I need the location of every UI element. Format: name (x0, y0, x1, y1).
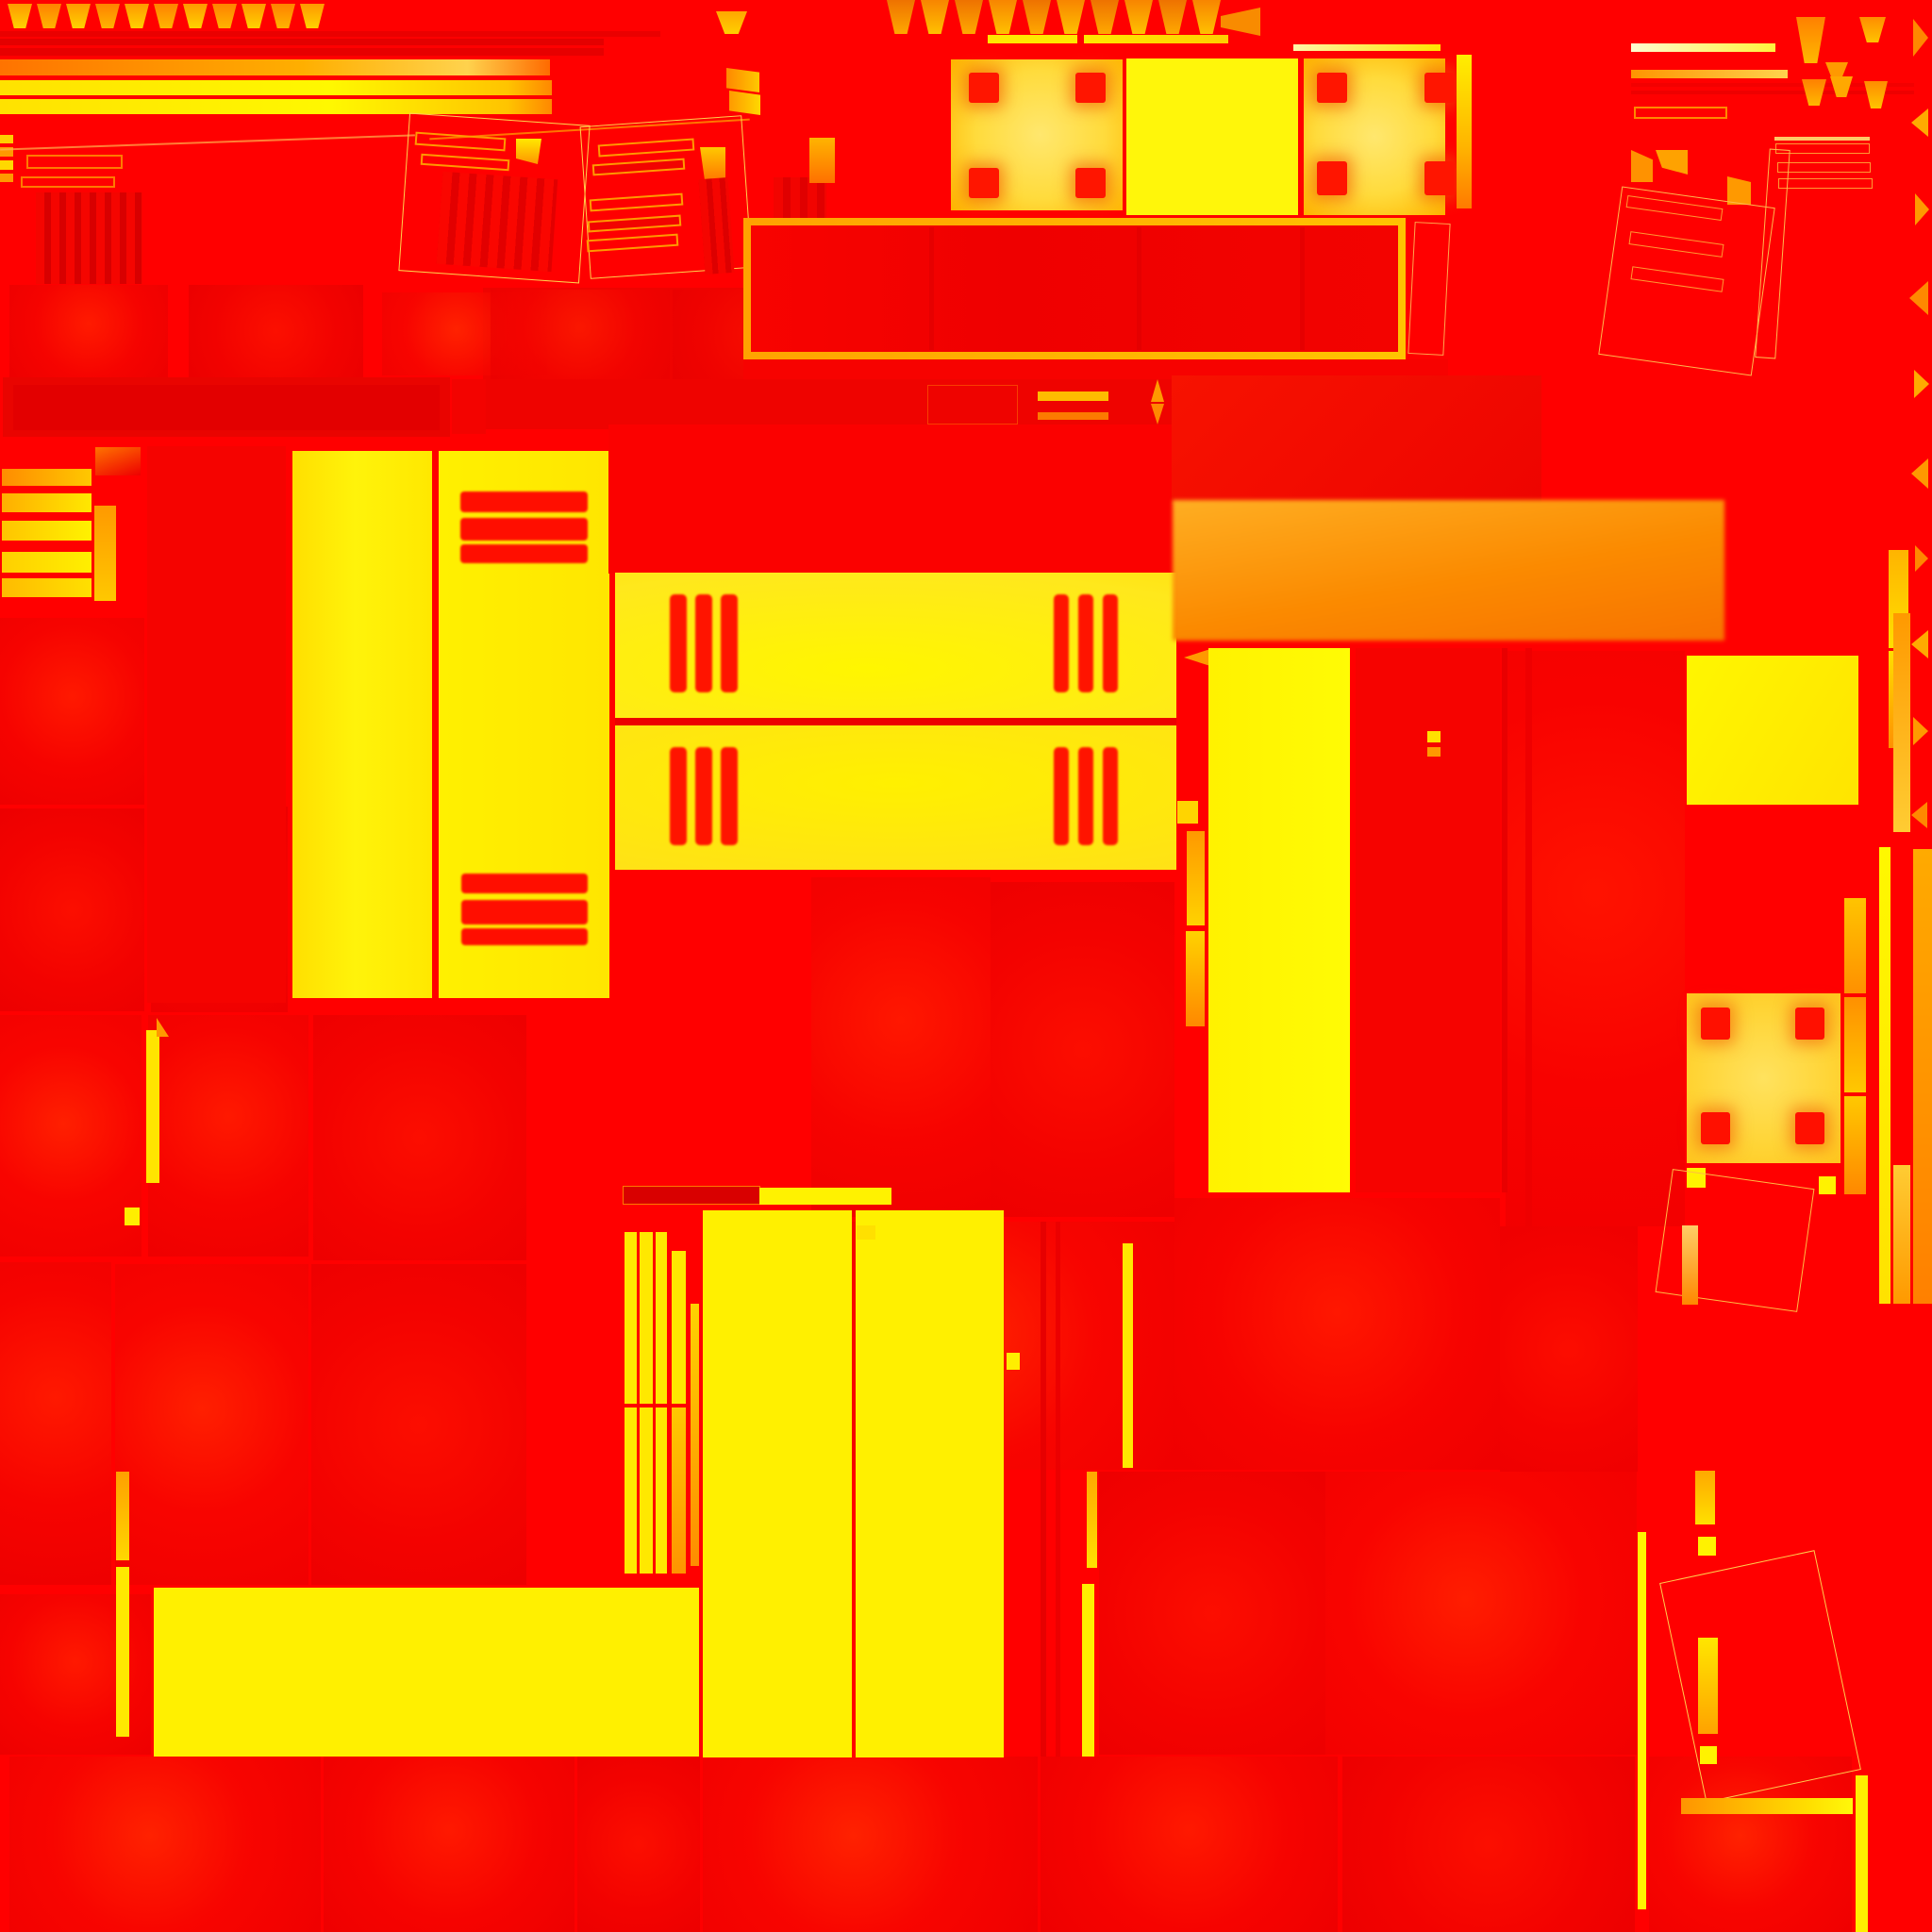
small-dash (1038, 391, 1108, 401)
stripe-trio (1054, 594, 1069, 692)
bottom-column (703, 1210, 852, 1757)
soft-tile (0, 1262, 111, 1585)
trapezoid-row-a (271, 4, 295, 28)
menu-bar-red (460, 518, 588, 541)
orange-bar (1631, 70, 1788, 78)
orange-wedge (1656, 150, 1688, 175)
stripe-trio (721, 594, 738, 692)
orange-bar-v (1698, 1638, 1718, 1734)
long-yellow-line (1638, 1532, 1646, 1909)
stripe-dark (0, 48, 604, 56)
stripe-trio (1054, 747, 1069, 845)
trapezoid-row-a (66, 4, 91, 28)
yellow-dash (1084, 35, 1228, 43)
corner-trapezoid (1859, 17, 1886, 42)
thin-strip (640, 1232, 653, 1404)
dice-pip (969, 73, 999, 103)
dark-line (1056, 1222, 1060, 1757)
dice-pip (1795, 1112, 1824, 1144)
left-thin-strip (116, 1472, 129, 1560)
doc-stripes (437, 172, 558, 272)
tiny-dash (1427, 731, 1441, 742)
trapezoid-row-a (154, 4, 178, 28)
yellow-block (1687, 656, 1858, 805)
far-strip (1893, 1165, 1910, 1304)
soft-tile (115, 1264, 308, 1585)
small-square (1819, 1176, 1836, 1194)
stripe-trio (1078, 747, 1093, 845)
yellow-column-mid (1208, 648, 1350, 1192)
dice-pip (1424, 161, 1455, 195)
left-thin-strip (146, 1030, 159, 1183)
outlined-bar (26, 155, 123, 169)
stripe-dark (0, 39, 604, 45)
edge-triangle (1911, 458, 1928, 489)
orange-wedge (1727, 176, 1751, 205)
stripe-yellow (0, 80, 552, 95)
corner-trapezoid (1864, 81, 1888, 108)
diag-line (0, 134, 415, 150)
mid-strip (1082, 1584, 1094, 1757)
stripe-trio (670, 747, 687, 845)
yellow-dash (988, 35, 1077, 43)
outlined-bar (1634, 107, 1727, 119)
faint-outline-rect (927, 385, 1018, 425)
trapezoid-row-b (1192, 0, 1221, 34)
seam-line (1502, 648, 1507, 1192)
tiny-dash (1427, 747, 1441, 757)
menu-bar-red (461, 900, 588, 924)
trapezoid-row-b (955, 0, 983, 34)
menu-bar-red (460, 491, 588, 512)
soft-tile (9, 285, 168, 377)
left-bar (2, 469, 92, 486)
trapezoid-row-a (95, 4, 120, 28)
thin-yellow-line (1123, 1243, 1133, 1468)
thin-strip (625, 1232, 637, 1404)
edge-triangle (1909, 281, 1928, 315)
trapezoid-row-b (1124, 0, 1153, 34)
dice-pip (1424, 73, 1455, 103)
dice-pip (1317, 73, 1347, 103)
edge-tick (0, 160, 13, 170)
trapezoid-row-b (887, 0, 915, 34)
book-stripes (36, 192, 142, 284)
edge-tick (0, 135, 13, 143)
left-thin-strip (116, 1567, 129, 1737)
row-end-wedge (1221, 8, 1260, 36)
mid-strip (1087, 1472, 1097, 1568)
tiny-dash (857, 1225, 875, 1240)
trapezoid-row-a (125, 4, 149, 28)
soft-tile (1342, 1757, 1635, 1932)
right-strip (1844, 997, 1866, 1092)
trapezoid-row-b (989, 0, 1017, 34)
soft-tile (148, 1015, 308, 1257)
bar-divider (615, 718, 1176, 725)
edge-triangle (1915, 545, 1928, 572)
edge-tick (0, 174, 13, 182)
far-strip (1913, 849, 1932, 1304)
corner-trapezoid (1802, 79, 1826, 106)
right-strip (1844, 1096, 1866, 1194)
soft-tile (311, 1264, 526, 1585)
gradient-hbar (1681, 1798, 1853, 1814)
texture-atlas-canvas (0, 0, 1932, 1932)
dice-pip (969, 168, 999, 198)
tilted-strip-outline (1407, 222, 1450, 356)
thin-strip (672, 1251, 686, 1404)
box-seam (929, 227, 934, 350)
dice-pip (1701, 1112, 1730, 1144)
soft-tile (0, 1015, 142, 1257)
edge-triangle (1914, 370, 1929, 398)
orange-wedge (1631, 150, 1653, 182)
left-bar (2, 552, 92, 573)
edge-triangle (1913, 717, 1928, 745)
small-triangle (1184, 649, 1210, 666)
menu-bar-red (460, 544, 588, 563)
narrow-strip (1186, 931, 1205, 1026)
thin-strip (656, 1407, 667, 1574)
soft-tile (1506, 651, 1685, 1226)
thin-strip (691, 1304, 699, 1566)
stripe-orange (0, 59, 550, 75)
trapezoid-row-b (1158, 0, 1187, 34)
tilted-outline (1656, 1169, 1815, 1312)
red-column-mid (1356, 648, 1500, 1192)
trapezoid-row-a (212, 4, 237, 28)
soft-tile (703, 1757, 1038, 1932)
edge-triangle (1913, 19, 1928, 57)
narrow-strip (1177, 801, 1198, 824)
far-strip (1893, 613, 1910, 832)
bottom-column (856, 1210, 1004, 1757)
outlined-bar (1777, 162, 1871, 173)
yellow-tile (1126, 58, 1298, 215)
stripe-trio (1103, 747, 1118, 845)
soft-tile (0, 808, 144, 1011)
stripe-trio (670, 594, 687, 692)
thin-strip (656, 1232, 667, 1404)
stripe-trio (721, 747, 738, 845)
left-bar (2, 521, 92, 541)
yellow-vbar (1856, 1775, 1868, 1932)
dice-pip (1075, 168, 1106, 198)
orange-wedge (95, 447, 141, 475)
banner-gradient (1173, 500, 1724, 641)
soft-tile (9, 1757, 321, 1932)
corner-trapezoid (1825, 62, 1848, 78)
gradient-strip (1457, 55, 1472, 208)
doc-wedge (809, 138, 835, 183)
trapezoid-row-b (1091, 0, 1119, 34)
trapezoid-row-a (241, 4, 266, 28)
soft-tile (324, 1757, 575, 1932)
white-yellow-bar (1631, 43, 1775, 52)
trapezoid-row-b (1057, 0, 1085, 34)
thin-strip (672, 1407, 686, 1574)
soft-tile (189, 285, 363, 377)
dice-pip (1317, 161, 1347, 195)
dash-dark (623, 1186, 760, 1205)
orange-strip (1682, 1225, 1698, 1305)
soft-tile (1500, 1226, 1638, 1472)
soft-tile (0, 618, 144, 805)
edge-triangle (1915, 193, 1929, 225)
left-bar (2, 493, 92, 512)
trapezoid-row-a (37, 4, 61, 28)
dark-rect-inner (13, 385, 440, 430)
small-dash (1038, 412, 1108, 420)
soft-tile (491, 290, 670, 379)
edge-triangle (1911, 802, 1927, 828)
soft-tile (577, 1757, 700, 1932)
left-bar (2, 578, 92, 597)
soft-tile (313, 1015, 526, 1260)
bright-strip (1879, 847, 1890, 1304)
stripe-yellow (0, 99, 552, 114)
wide-yellow-bar (154, 1588, 699, 1757)
soft-tile (1041, 1757, 1338, 1932)
soft-tile (1325, 1472, 1637, 1755)
red-column-left (147, 446, 286, 1003)
narrow-strip (1187, 831, 1205, 925)
trapezoid-row-b (921, 0, 949, 34)
dark-block (1172, 375, 1541, 505)
edge-triangle (1911, 108, 1928, 137)
box-seam (1300, 227, 1305, 350)
small-square (1698, 1537, 1716, 1556)
soft-tile (1099, 1472, 1325, 1755)
trapezoid-row-a (300, 4, 325, 28)
soft-tile (811, 877, 991, 1217)
dice-pip (1701, 1008, 1730, 1040)
soft-tile (991, 882, 1174, 1217)
soft-tile (1174, 1198, 1500, 1470)
orange-strip (1695, 1471, 1715, 1524)
trapezoid-row-b (1023, 0, 1051, 34)
orange-strip (94, 506, 116, 601)
thin-strip (640, 1407, 653, 1574)
menu-bar-red (461, 874, 588, 893)
single-trapezoid (716, 11, 747, 34)
dice-pip (1075, 73, 1106, 103)
dash-bright (759, 1188, 891, 1205)
small-square (125, 1207, 140, 1225)
stripe-trio (1103, 594, 1118, 692)
outlined-bar (21, 176, 115, 188)
box-seam (1137, 227, 1141, 350)
thin-line (1774, 137, 1870, 141)
dark-line (1041, 1222, 1046, 1757)
trapezoid-row-a (183, 4, 208, 28)
red-band (608, 425, 1174, 574)
stripe-trio (695, 747, 712, 845)
orange-wedge (729, 91, 760, 115)
thin-strip (625, 1407, 637, 1574)
orange-wedge (726, 68, 759, 92)
yellow-dash (1293, 44, 1441, 51)
dice-pip (1795, 1008, 1824, 1040)
stripe-trio (695, 594, 712, 692)
yellow-column-a (292, 451, 432, 998)
corner-trapezoid (1796, 17, 1825, 63)
stripe-dark (0, 31, 660, 37)
trapezoid-row-a (8, 4, 32, 28)
menu-bar-red (461, 928, 588, 945)
right-strip (1844, 898, 1866, 993)
seam-line (1525, 648, 1532, 1226)
outlined-bar (1778, 178, 1873, 189)
edge-triangle (1911, 630, 1928, 658)
small-square (1700, 1746, 1717, 1764)
stripe-trio (1078, 594, 1093, 692)
small-square (1007, 1353, 1020, 1370)
dark-rect-ext (452, 379, 486, 434)
